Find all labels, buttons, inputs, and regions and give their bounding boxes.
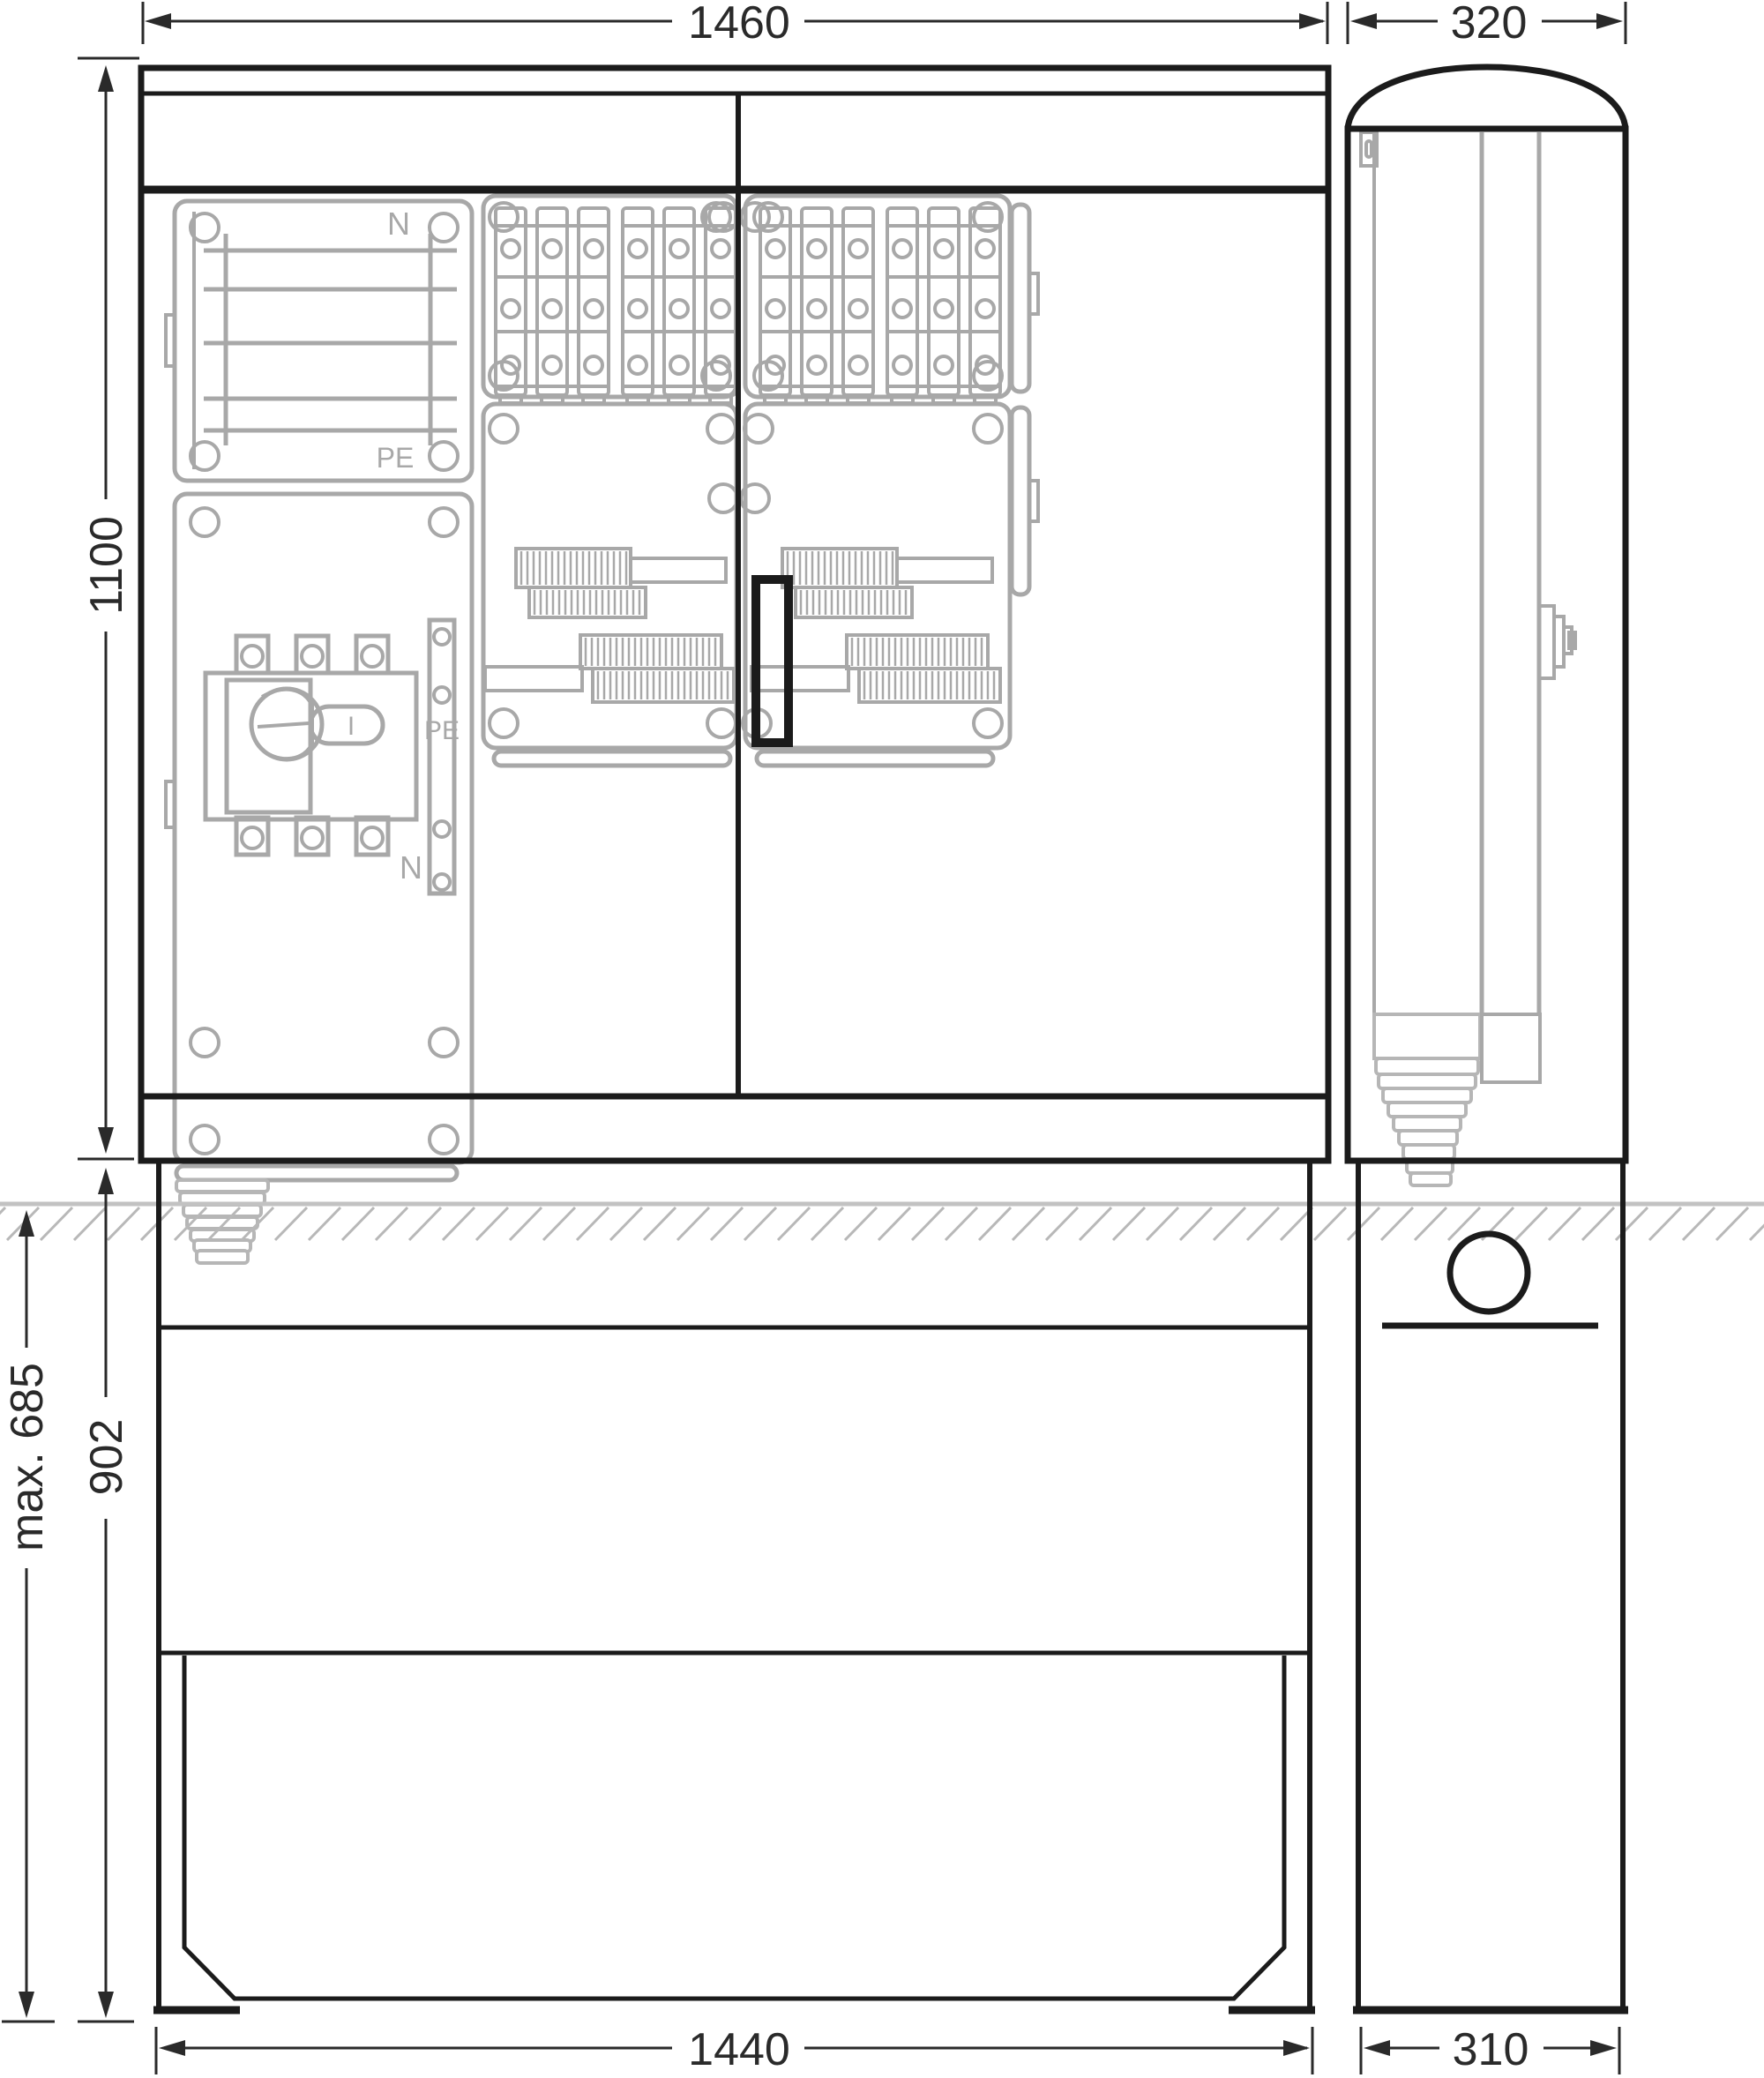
burial-depth-label: max. 685 [2,1363,53,1551]
base-width-label: 1440 [688,2024,790,2075]
dimension-base-height: 902 [78,1168,134,2022]
technical-drawing: N PE I [0,0,1764,2078]
front-cable-gland [176,1180,268,1263]
side-internals-ghost [1361,132,1575,1185]
front-internals-ghost: N PE I [166,196,1038,1263]
front-height-label: 1100 [81,516,132,615]
rail-n-label: N [400,849,422,886]
dimension-front-height: 1100 [78,58,139,1159]
front-base [153,1161,1315,2010]
front-width-label: 1460 [688,0,790,49]
rail-pe-label: PE [424,716,460,745]
pe-n-rail [430,620,454,893]
drawing-page: N PE I [0,0,1764,2078]
dimension-side-width: 320 [1348,0,1626,49]
dimension-front-width: 1460 [143,0,1327,49]
dimension-side-base-width: 310 [1361,2024,1619,2075]
side-base [1353,1161,1628,2010]
side-lock-detail [1539,606,1575,678]
side-width-label: 320 [1451,0,1528,49]
busbar-n-label: N [387,206,410,242]
cable-entry-marker [1450,1234,1528,1312]
door-handle [756,579,789,743]
base-height-label: 902 [81,1419,132,1496]
side-base-width-label: 310 [1453,2024,1529,2075]
dimension-base-width: 1440 [156,2024,1312,2075]
fuse-strips [496,208,1000,403]
busbar-pe-label: PE [377,442,415,474]
dimension-burial-depth: max. 685 [2,1210,55,2022]
switch-position-label: I [348,712,355,741]
side-roof-arch [1348,67,1626,129]
busbar-panel: N PE [166,201,472,481]
side-cabinet-outline [1348,129,1626,1161]
main-switch-panel: I PE N [166,494,472,1263]
